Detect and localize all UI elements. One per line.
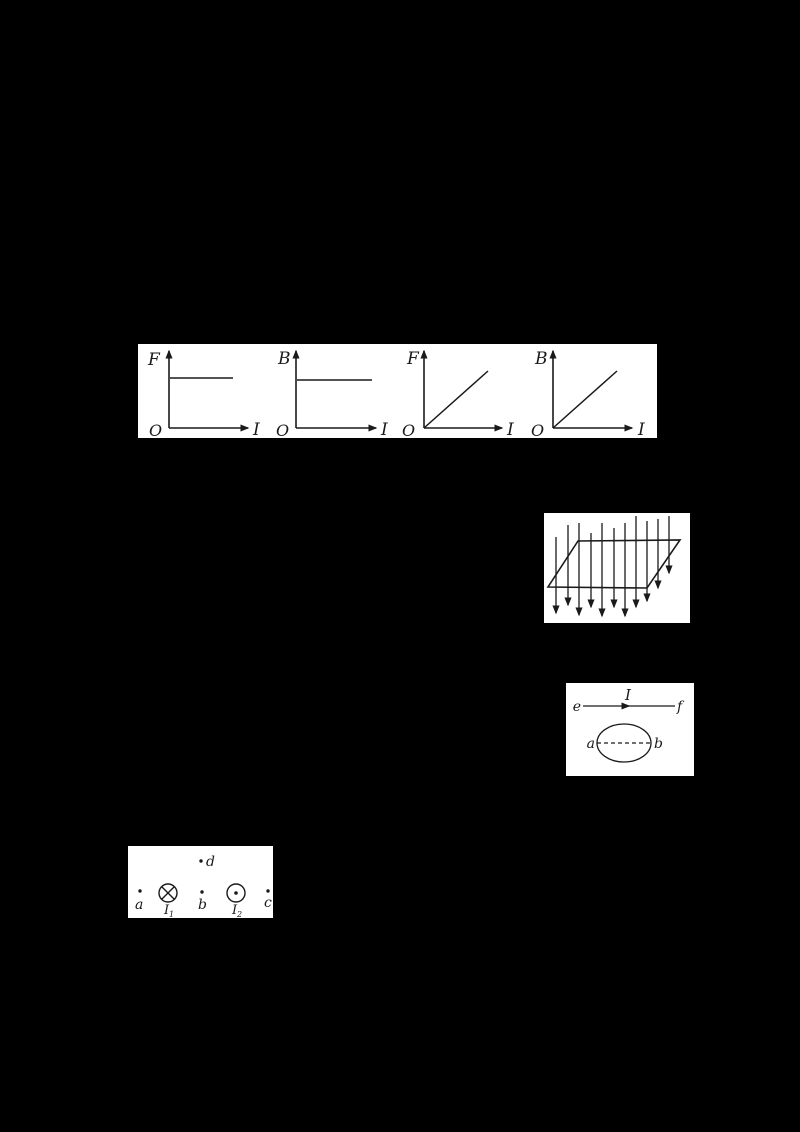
point-c-label: c bbox=[264, 895, 272, 911]
current-out-of-page-symbol bbox=[227, 884, 245, 902]
point-a-label: a bbox=[135, 897, 143, 913]
graph-b-linear: B O I bbox=[531, 349, 645, 438]
wire-right-label: f bbox=[676, 699, 685, 715]
origin-label: O bbox=[402, 421, 415, 438]
y-axis-label: F bbox=[406, 349, 420, 369]
origin-label: O bbox=[276, 421, 289, 438]
wire-loop-figure: I e f a b bbox=[566, 683, 694, 776]
parallel-currents-svg: d a I 1 b I 2 c bbox=[128, 846, 273, 918]
y-axis-label: F bbox=[147, 350, 161, 370]
y-axis-label: B bbox=[534, 349, 548, 369]
point-a-dot bbox=[138, 889, 141, 892]
wire2-label-sub: 2 bbox=[236, 910, 242, 918]
wire1-label-sub: 1 bbox=[169, 910, 174, 918]
loop-right-label: b bbox=[654, 736, 663, 752]
fi-graphs-svg: F O I B O I F O I B O I bbox=[138, 344, 657, 438]
current-into-page-symbol bbox=[159, 884, 177, 902]
curve-linear bbox=[553, 371, 617, 428]
point-d-label: d bbox=[206, 854, 215, 870]
origin-label: O bbox=[531, 421, 544, 438]
graph-b-constant: B O I bbox=[276, 349, 388, 438]
wire-left-label: e bbox=[573, 699, 581, 715]
loop-left-label: a bbox=[587, 736, 595, 752]
x-axis-label: I bbox=[380, 420, 388, 438]
field-lines bbox=[556, 516, 669, 616]
point-b-label: b bbox=[198, 897, 207, 913]
x-axis-label: I bbox=[252, 420, 260, 438]
fi-graphs-figure: F O I B O I F O I B O I bbox=[138, 344, 657, 438]
wire-loop-svg: I e f a b bbox=[566, 683, 694, 776]
x-axis-label: I bbox=[637, 420, 645, 438]
wire2-center-dot bbox=[234, 891, 238, 895]
x-axis-label: I bbox=[506, 420, 514, 438]
field-plane-figure bbox=[544, 513, 690, 623]
y-axis-label: B bbox=[277, 349, 291, 369]
current-label: I bbox=[624, 686, 632, 704]
point-d-dot bbox=[199, 859, 202, 862]
graph-f-linear: F O I bbox=[402, 349, 514, 438]
point-c-dot bbox=[266, 889, 269, 892]
curve-linear bbox=[424, 371, 488, 428]
parallel-currents-figure: d a I 1 b I 2 c bbox=[128, 846, 273, 918]
origin-label: O bbox=[149, 421, 162, 438]
graph-f-constant: F O I bbox=[147, 350, 260, 438]
field-plane-svg bbox=[544, 513, 690, 623]
point-b-dot bbox=[200, 890, 203, 893]
